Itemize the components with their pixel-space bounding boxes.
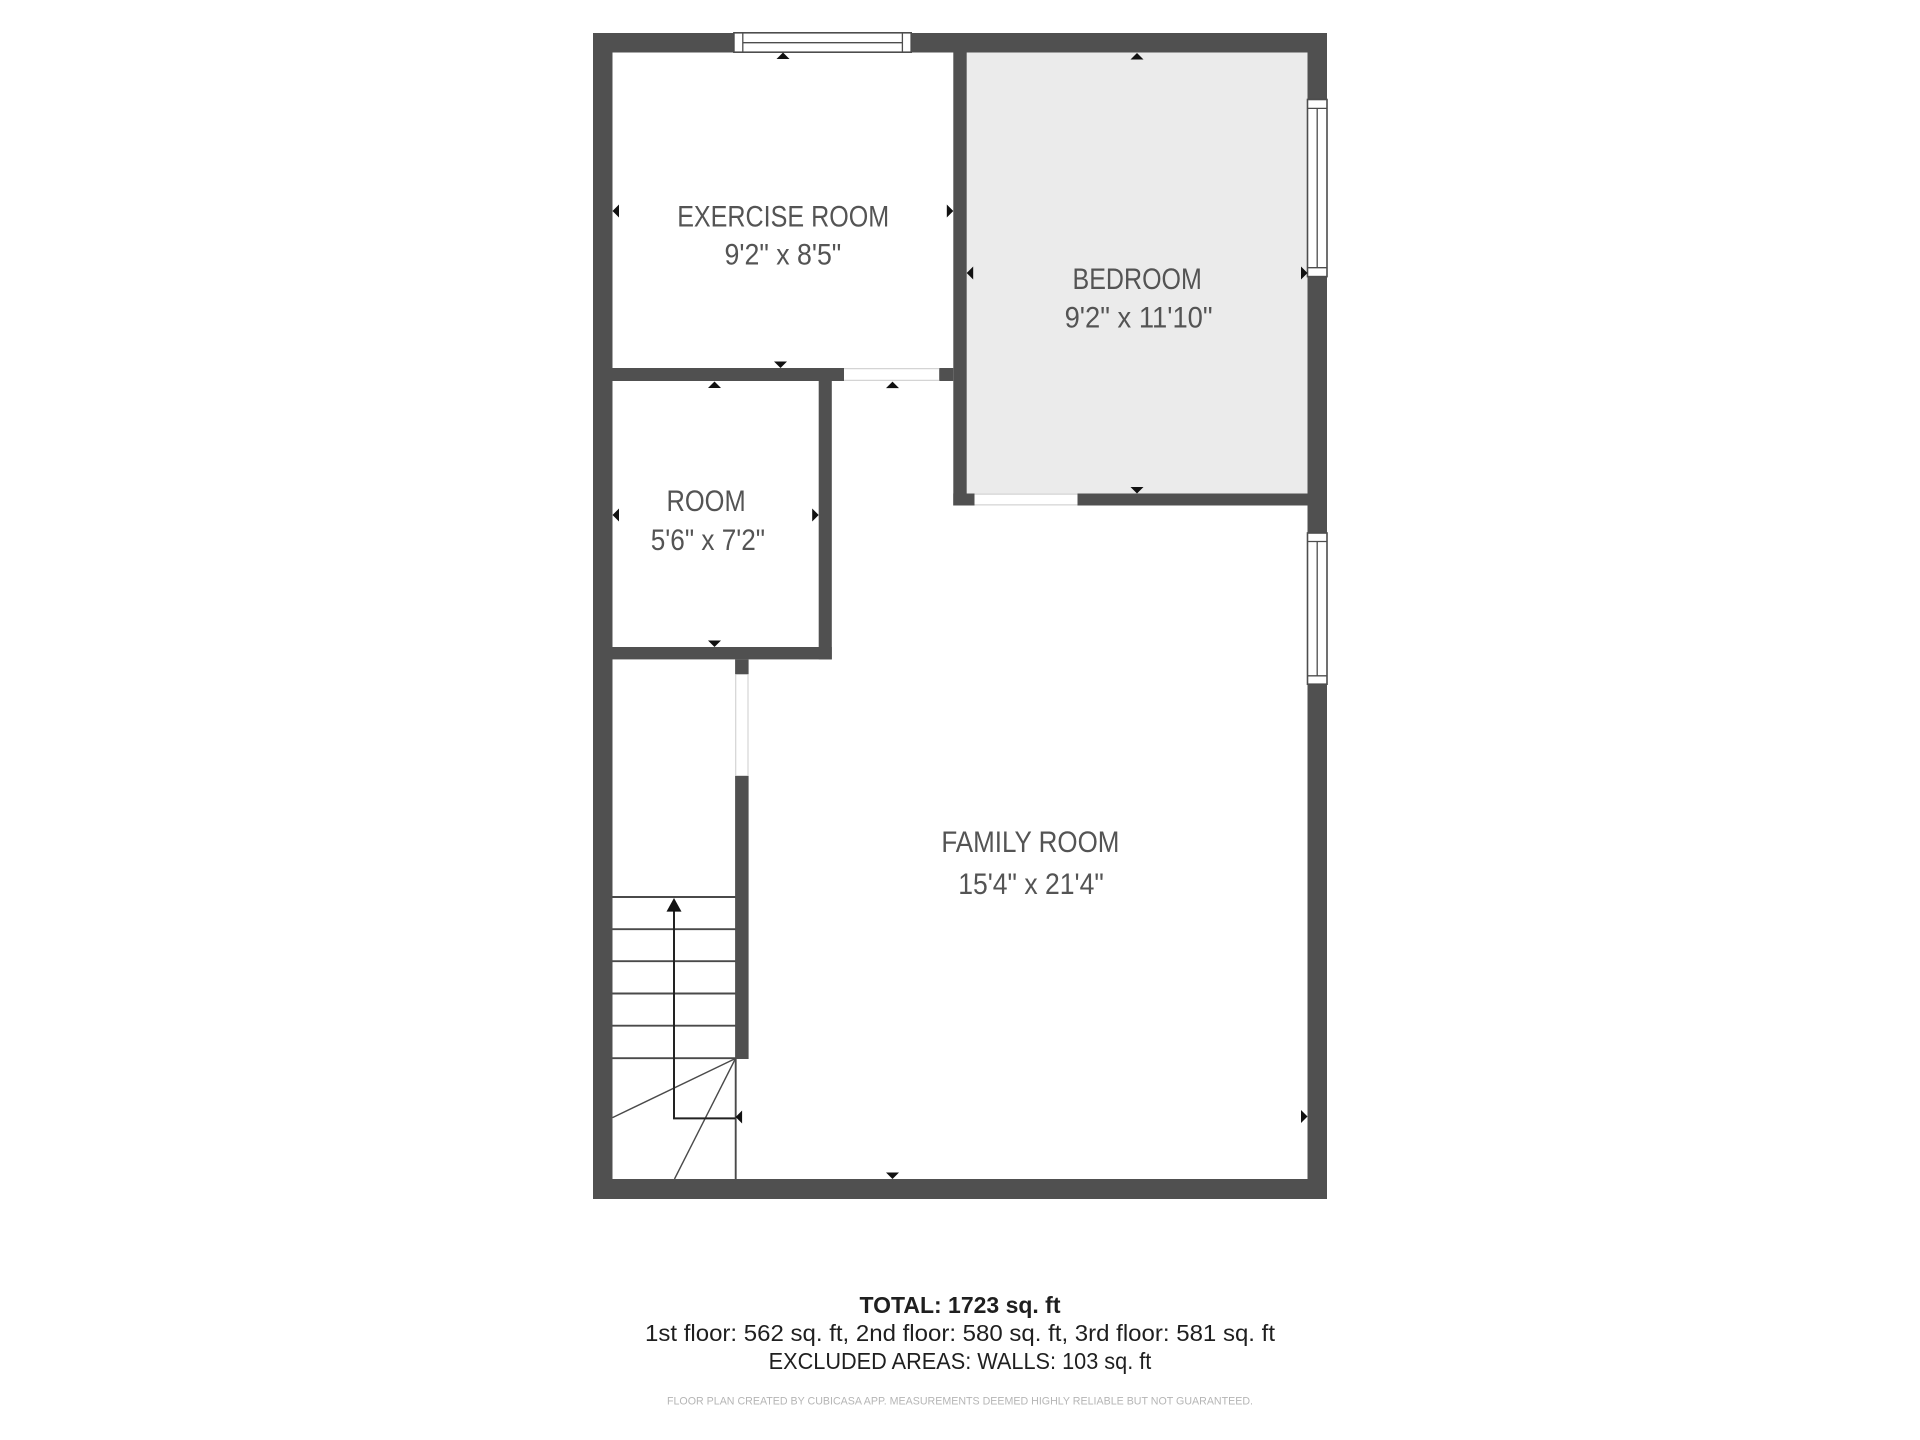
svg-text:EXCLUDED AREAS: WALLS: 103 sq.: EXCLUDED AREAS: WALLS: 103 sq. ft	[769, 1348, 1152, 1374]
svg-text:9'2" x 11'10": 9'2" x 11'10"	[1065, 302, 1213, 335]
svg-text:5'6" x 7'2": 5'6" x 7'2"	[651, 524, 765, 557]
svg-text:EXERCISE ROOM: EXERCISE ROOM	[677, 200, 889, 233]
svg-text:TOTAL: 1723 sq. ft: TOTAL: 1723 sq. ft	[860, 1292, 1061, 1318]
svg-text:FAMILY ROOM: FAMILY ROOM	[941, 826, 1119, 859]
svg-text:FLOOR PLAN CREATED BY CUBICASA: FLOOR PLAN CREATED BY CUBICASA APP. MEAS…	[667, 1396, 1253, 1408]
svg-text:BEDROOM: BEDROOM	[1073, 263, 1202, 296]
svg-text:1st floor: 562 sq. ft, 2nd flo: 1st floor: 562 sq. ft, 2nd floor: 580 sq…	[645, 1320, 1276, 1346]
svg-text:15'4" x 21'4": 15'4" x 21'4"	[958, 868, 1104, 901]
svg-text:ROOM: ROOM	[667, 485, 746, 518]
svg-text:9'2" x 8'5": 9'2" x 8'5"	[725, 239, 842, 272]
